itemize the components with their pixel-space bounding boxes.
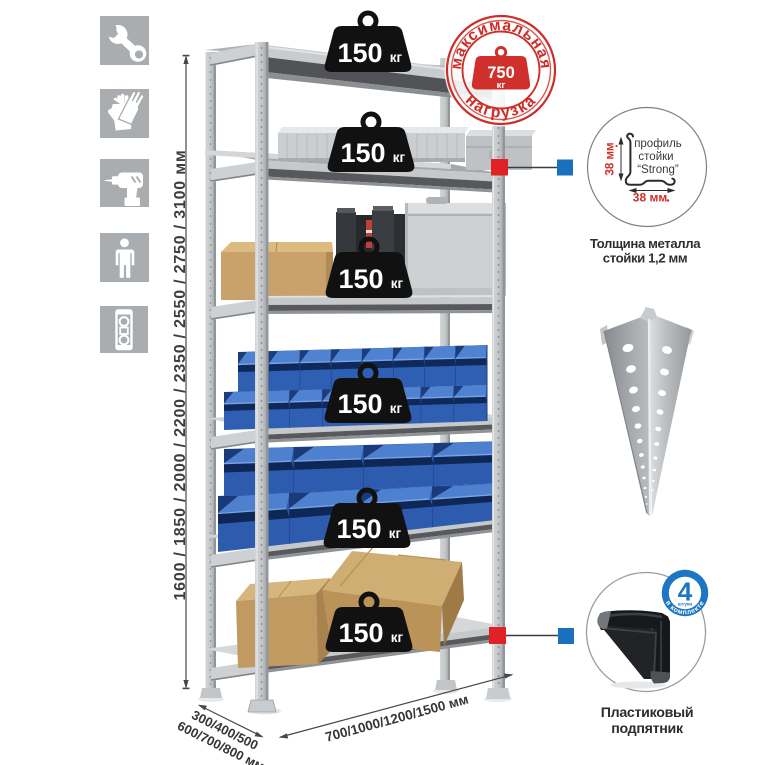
svg-text:“Strong”: “Strong” <box>637 164 679 176</box>
svg-text:150: 150 <box>338 264 383 294</box>
svg-text:подпятник: подпятник <box>611 721 684 737</box>
svg-text:кг: кг <box>389 526 402 541</box>
svg-text:150: 150 <box>336 514 381 544</box>
svg-text:150: 150 <box>337 38 382 68</box>
svg-text:кг: кг <box>390 50 403 65</box>
svg-text:профиль: профиль <box>634 138 682 150</box>
svg-text:стойки 1,2 мм: стойки 1,2 мм <box>603 251 687 266</box>
svg-text:стойки: стойки <box>638 151 673 163</box>
svg-text:штуки: штуки <box>678 603 693 608</box>
svg-text:1600 / 1850 / 2000 / 2200 / 23: 1600 / 1850 / 2000 / 2200 / 2350 / 2550 … <box>172 149 189 600</box>
svg-text:кг: кг <box>391 276 404 291</box>
svg-text:38 мм: 38 мм <box>633 191 668 205</box>
svg-text:Толщина металла: Толщина металла <box>590 236 701 251</box>
svg-text:кг: кг <box>390 401 403 416</box>
svg-text:38 мм: 38 мм <box>605 142 617 175</box>
svg-text:кг: кг <box>497 80 506 91</box>
svg-text:Пластиковый: Пластиковый <box>601 705 694 721</box>
svg-text:кг: кг <box>393 150 406 165</box>
svg-text:150: 150 <box>340 138 385 168</box>
svg-text:150: 150 <box>338 618 383 648</box>
svg-text:150: 150 <box>337 389 382 419</box>
svg-text:кг: кг <box>391 630 404 645</box>
